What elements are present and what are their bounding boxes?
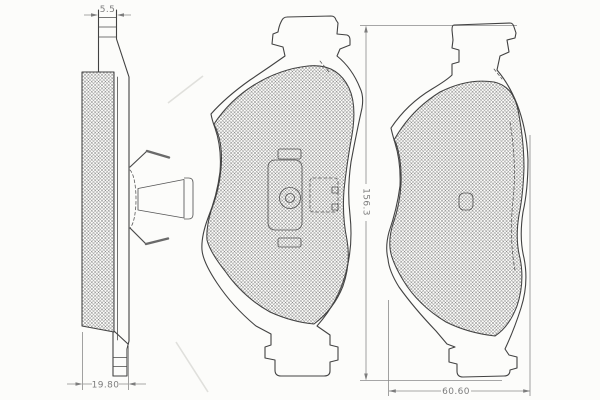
technical-drawing-sheet: 5.5 19.80 156.3 — [0, 0, 600, 400]
dimension-label-pad-width: 60.60 — [442, 387, 470, 397]
dimension-label-tab-thickness: 5.5 — [100, 5, 116, 15]
side-view-friction-block-hatch — [82, 72, 114, 332]
dimension-label-total-thickness: 19.80 — [92, 381, 120, 391]
dimension-label-pad-height: 156.3 — [361, 188, 371, 216]
brake-pad-drawing-canvas: 5.5 19.80 156.3 — [0, 0, 600, 400]
